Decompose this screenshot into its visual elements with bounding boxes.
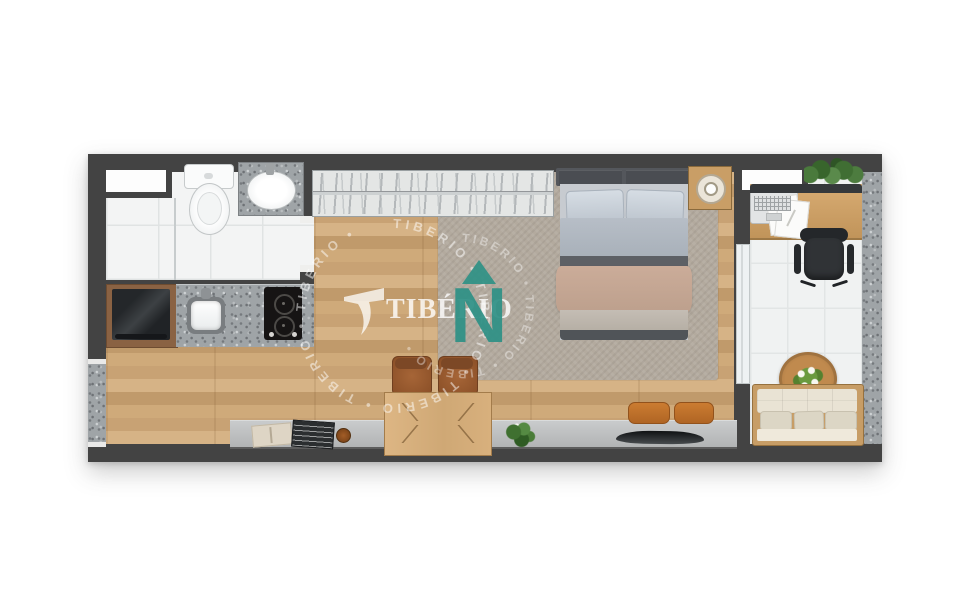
sofa-back-cushions	[757, 389, 857, 413]
wardrobe-closet	[312, 170, 554, 217]
chair-seat	[804, 238, 844, 280]
kitchen-faucet	[201, 288, 211, 299]
laptop-trackpad	[766, 213, 782, 221]
floor-cushion	[628, 402, 670, 424]
chair-backrest	[395, 358, 427, 369]
burner	[274, 294, 295, 315]
sofa-pillow	[760, 411, 792, 431]
lamp-inner	[704, 182, 718, 196]
sofa-pillow	[825, 411, 857, 431]
left-window-sill	[88, 364, 106, 442]
cooktop-knob	[269, 332, 274, 337]
book	[251, 422, 293, 447]
bathroom-faucet	[266, 163, 274, 175]
balcony-parapet	[862, 172, 882, 444]
bed-sheet	[560, 310, 688, 332]
headboard-panel	[559, 170, 622, 185]
laptop-keyboard	[754, 196, 791, 211]
kitchen-sink	[191, 301, 221, 330]
office-chair	[794, 228, 854, 290]
sofa	[752, 384, 864, 446]
bathroom-sink	[247, 171, 296, 210]
bathroom-door-jamb-bottom	[300, 265, 314, 272]
chair-armrest	[847, 244, 854, 274]
dining-chair	[392, 356, 432, 396]
footboard	[560, 330, 688, 340]
bathroom-door-jamb-top	[300, 216, 314, 223]
refrigerator	[112, 289, 170, 340]
shower-screen	[174, 198, 176, 280]
sofa-seat-edge	[757, 429, 857, 441]
magazine	[291, 420, 335, 450]
chair-armrest	[794, 244, 801, 274]
dining-table	[384, 392, 492, 456]
dining-chair	[438, 356, 478, 396]
tv	[616, 431, 704, 445]
chair-backrest	[441, 358, 473, 369]
duvet	[560, 218, 688, 258]
left-window-frame-bottom	[88, 442, 106, 447]
bed-throw	[556, 266, 692, 312]
toilet	[189, 183, 230, 235]
bathroom-window	[106, 170, 166, 192]
floor-cushion	[674, 402, 714, 424]
cooktop	[264, 287, 302, 340]
toilet-bowl-inner	[197, 192, 222, 225]
hanging-plants	[804, 156, 864, 190]
fridge-handle	[115, 334, 167, 339]
balcony-glass-door	[736, 244, 750, 384]
headboard-panel	[626, 170, 689, 185]
floor-plan-canvas: TIBERIO • TIBERIO • TIBERIO • TIBERIO • …	[0, 0, 971, 609]
flush-button	[204, 173, 213, 179]
double-bed	[556, 166, 692, 342]
nightstand	[688, 166, 732, 210]
bathroom-wall-lower	[300, 272, 314, 280]
table-lamp	[696, 174, 726, 204]
decor-bowl	[336, 428, 351, 443]
cooktop-knob	[292, 332, 297, 337]
potted-plant	[504, 420, 536, 450]
